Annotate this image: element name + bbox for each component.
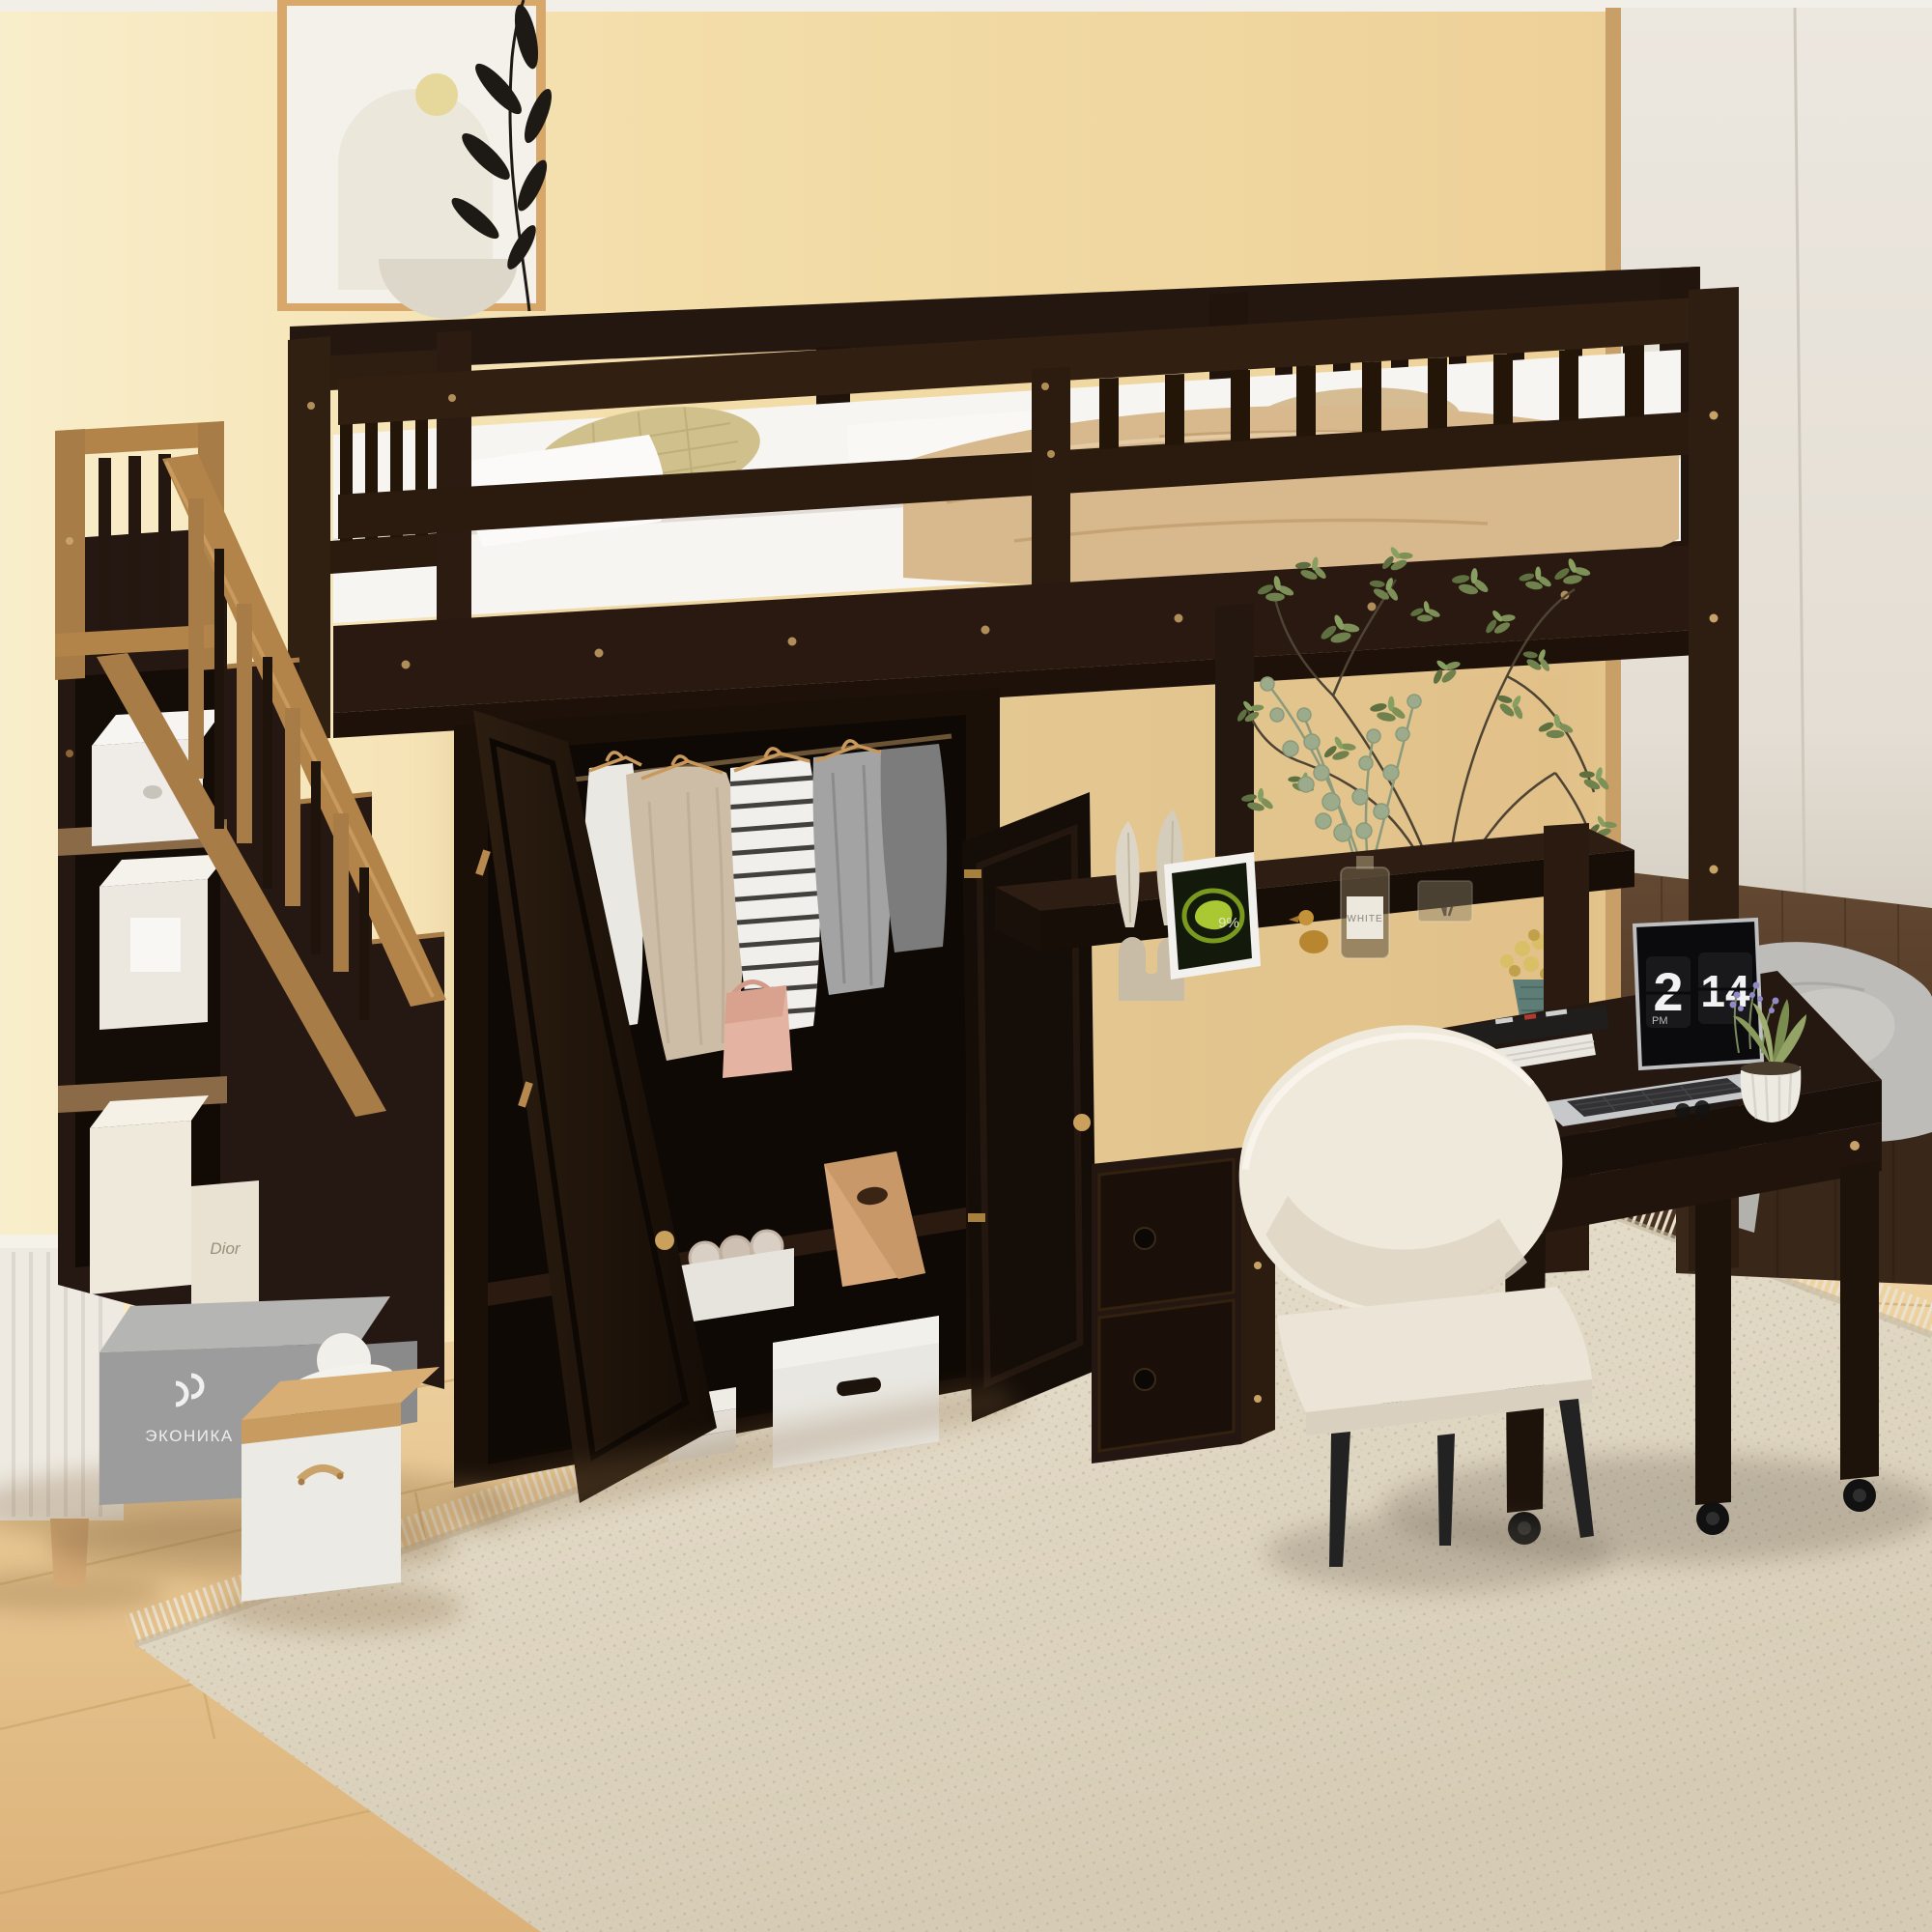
drawer-knob-upper xyxy=(1134,1228,1155,1249)
wall-art-frame xyxy=(277,0,557,319)
diffuser-label: WHITE xyxy=(1347,914,1382,924)
door-knob xyxy=(655,1231,674,1250)
pink-handbag xyxy=(723,981,792,1078)
room-photo: 9% WHITE xyxy=(0,0,1932,1932)
diffuser-bottle: WHITE xyxy=(1341,856,1389,958)
door-knob-right xyxy=(1073,1114,1091,1131)
drawer-upper xyxy=(1099,1159,1234,1310)
garment-dark-gray xyxy=(881,744,947,952)
drawer-knob-lower xyxy=(1134,1369,1155,1390)
tablet-battery-label: 9% xyxy=(1218,915,1239,931)
tablet-device: 9% xyxy=(1164,852,1261,980)
dior-box-label: Dior xyxy=(210,1239,241,1258)
drawer-lower xyxy=(1099,1300,1234,1451)
glass-cylinder-vase xyxy=(1418,881,1472,922)
clock-meridiem: PM xyxy=(1652,1015,1668,1027)
garment-gray-sweater xyxy=(813,750,892,995)
desk-leg-front-right xyxy=(1840,1161,1879,1480)
shoebox-brand-text: ЭКОНИКА xyxy=(145,1427,233,1445)
art-sun-circle xyxy=(415,73,458,116)
